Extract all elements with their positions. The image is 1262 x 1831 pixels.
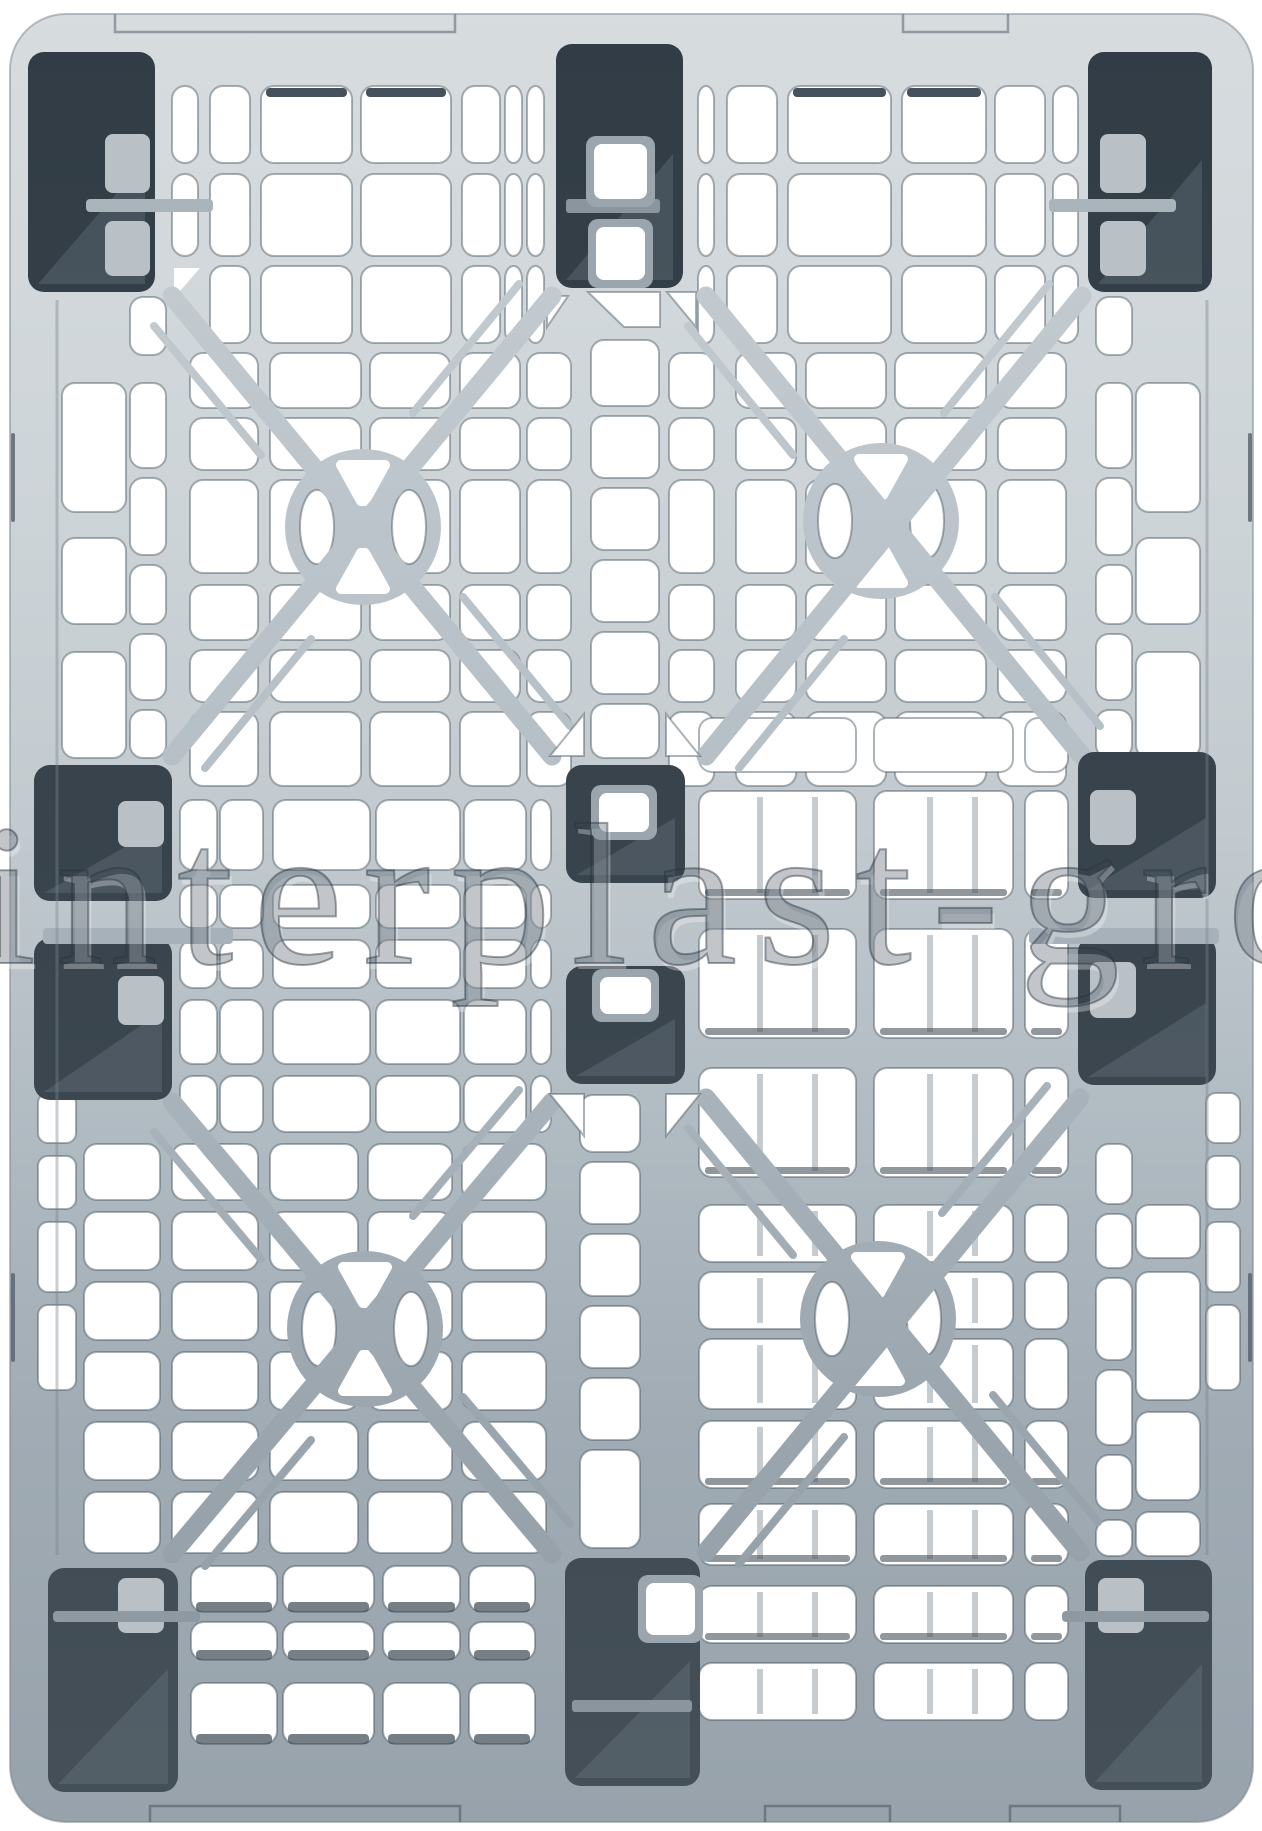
svg-text:interplast-gro: interplast-gro <box>0 783 1262 1007</box>
